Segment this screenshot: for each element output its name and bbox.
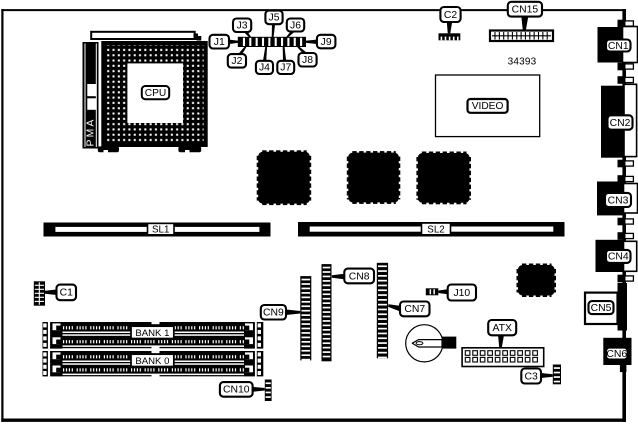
svg-text:BANK 0: BANK 0 <box>135 356 169 367</box>
svg-text:C1: C1 <box>60 288 74 299</box>
svg-text:J9: J9 <box>321 37 332 48</box>
svg-text:PMA: PMA <box>85 117 96 146</box>
svg-text:BANK 1: BANK 1 <box>135 328 169 339</box>
svg-text:34393: 34393 <box>508 56 537 67</box>
svg-text:C3: C3 <box>525 371 539 382</box>
svg-text:SL1: SL1 <box>152 225 169 236</box>
svg-text:J6: J6 <box>290 20 301 31</box>
svg-text:J3: J3 <box>237 21 248 32</box>
svg-text:CN10: CN10 <box>223 385 250 396</box>
svg-text:CN3: CN3 <box>608 195 629 206</box>
svg-text:J7: J7 <box>280 63 291 74</box>
svg-text:J10: J10 <box>453 288 470 299</box>
svg-text:CN15: CN15 <box>512 5 539 16</box>
svg-text:CN1: CN1 <box>608 41 629 52</box>
svg-text:J5: J5 <box>269 13 280 24</box>
svg-text:CN4: CN4 <box>608 252 629 263</box>
svg-text:VIDEO: VIDEO <box>472 101 504 112</box>
svg-text:CN9: CN9 <box>263 308 284 319</box>
svg-text:C2: C2 <box>444 10 458 21</box>
svg-text:CN6: CN6 <box>606 349 627 360</box>
svg-text:CN7: CN7 <box>404 304 425 315</box>
svg-text:ATX: ATX <box>492 323 512 334</box>
svg-text:J1: J1 <box>214 37 225 48</box>
svg-text:CN2: CN2 <box>610 118 631 129</box>
svg-text:CN8: CN8 <box>349 271 370 282</box>
svg-text:J4: J4 <box>259 63 270 74</box>
svg-text:J2: J2 <box>231 56 242 67</box>
svg-text:CPU: CPU <box>145 88 167 99</box>
svg-text:CN5: CN5 <box>591 303 612 314</box>
svg-text:SL2: SL2 <box>427 224 444 235</box>
svg-text:J8: J8 <box>302 55 313 66</box>
